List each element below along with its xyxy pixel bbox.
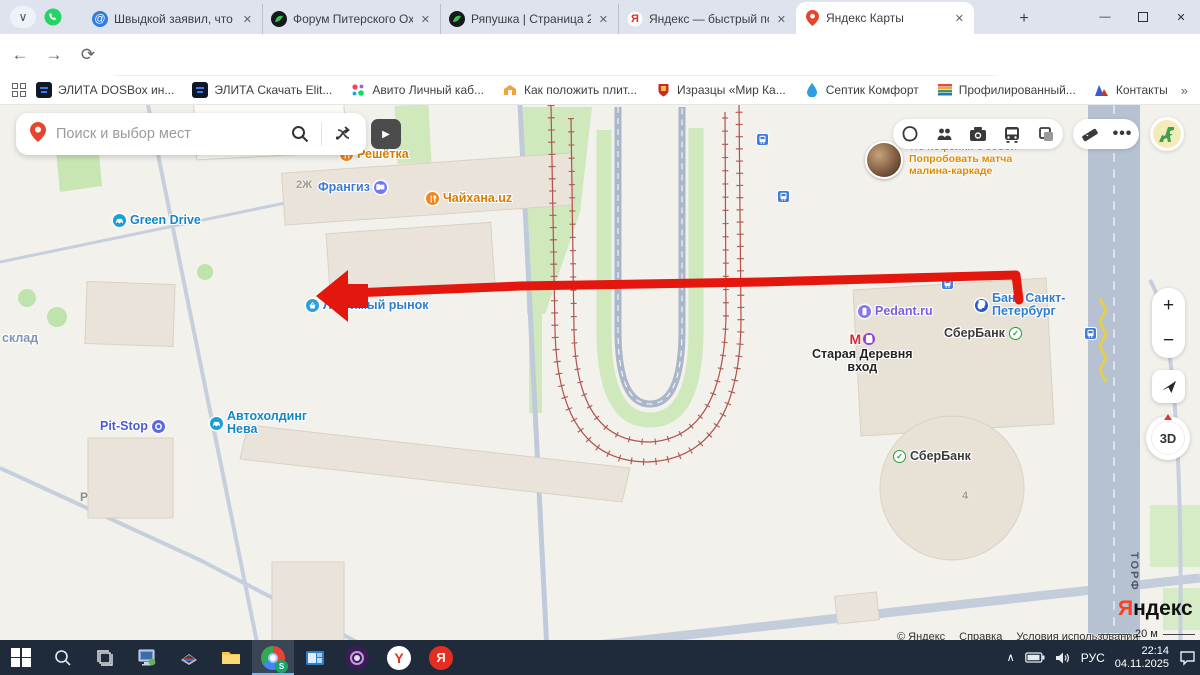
map-poi-6[interactable]: склад [2, 332, 38, 345]
reload-button[interactable]: ⟳ [74, 41, 102, 69]
back-button[interactable]: ← [6, 41, 34, 69]
more-tools-icon[interactable]: ••• [1110, 125, 1136, 143]
file-explorer-icon[interactable] [210, 640, 252, 675]
window-controls: — ✕ [1086, 0, 1200, 34]
bookmarks-overflow-icon[interactable]: » [1181, 83, 1188, 98]
map-text-4: ТОРФ [1128, 552, 1140, 592]
bookmark-label: Изразцы «Мир Ка... [677, 83, 786, 97]
yandex-logo[interactable]: Яндекс [1118, 597, 1193, 621]
help-link[interactable]: Справка [959, 631, 1002, 640]
panoramas-camera-icon[interactable] [965, 126, 991, 142]
map-poi-9[interactable]: Pedant.ru [858, 305, 933, 318]
map-poi-5[interactable]: Любимый рынок [306, 299, 429, 312]
transport-bus-icon[interactable] [999, 126, 1025, 143]
start-button[interactable] [0, 640, 42, 675]
bookmark-label: Профилированный... [959, 83, 1076, 97]
tab-close-icon[interactable]: ✕ [241, 13, 254, 26]
new-tab-button[interactable]: + [1012, 7, 1036, 31]
battery-icon[interactable] [1025, 652, 1045, 663]
bookmark-label: ЭЛИТА DOSBox ин... [58, 83, 174, 97]
action-center-icon[interactable] [1179, 650, 1196, 666]
map-pin-red-icon [30, 122, 46, 147]
draw-area-icon[interactable] [897, 125, 923, 143]
bookmark-item-2[interactable]: ЭЛИТА Скачать Elit... [192, 82, 332, 98]
transit-stop-icon-3[interactable] [941, 277, 954, 290]
map-base-layer [0, 105, 1200, 640]
map-text-1: 2Ж [296, 179, 312, 191]
language-indicator[interactable]: РУС [1081, 651, 1105, 665]
browser-tab-3[interactable]: Ряпушка | Страница 21 | Ф✕ [440, 4, 618, 34]
browser-tab-2[interactable]: Форум Питерского Охотн✕ [262, 4, 440, 34]
apps-grid-icon[interactable] [12, 83, 26, 97]
tab-close-icon[interactable]: ✕ [775, 13, 788, 26]
yandex-browser-icon[interactable]: Y [378, 640, 420, 675]
ruler-pill: ••• [1073, 119, 1139, 149]
remote-desktop-app-icon[interactable] [126, 640, 168, 675]
bookmark-label: Септик Комфорт [826, 83, 919, 97]
map-poi-8[interactable]: АвтохолдингНева [210, 410, 307, 436]
tor-browser-icon[interactable] [336, 640, 378, 675]
yandex-app-icon[interactable]: Я [420, 640, 462, 675]
close-button[interactable]: ✕ [1162, 0, 1200, 34]
compass-north-icon [1164, 414, 1172, 420]
browser-tab-1[interactable]: @Швыдкой заявил, что рус✕ [84, 4, 262, 34]
clock[interactable]: 22:14 04.11.2025 [1115, 645, 1169, 671]
map-poi-4[interactable]: Green Drive [113, 214, 201, 227]
volume-icon[interactable] [1055, 651, 1071, 665]
transit-stop-icon-4[interactable] [1084, 327, 1097, 340]
copyright-link[interactable]: © Яндекс [897, 631, 945, 640]
tab-search-button[interactable]: ∨ [10, 6, 36, 28]
system-tray: ∧ РУС 22:14 04.11.2025 [1007, 640, 1196, 675]
dino-game-button[interactable] [1150, 117, 1184, 151]
tab-close-icon[interactable]: ✕ [597, 13, 610, 26]
compass-3d-label: 3D [1151, 421, 1185, 455]
map-search-box[interactable]: Поиск и выбор мест [16, 113, 366, 155]
locate-me-button[interactable] [1152, 370, 1185, 403]
zoom-out-button[interactable]: − [1152, 323, 1185, 358]
whatsapp-pinned-icon[interactable] [44, 8, 62, 31]
bookmark-item-1[interactable]: ЭЛИТА DOSBox ин... [36, 82, 174, 98]
map-tools-pill [893, 119, 1063, 149]
tab-title: Форум Питерского Охотн [293, 12, 413, 26]
maximize-button[interactable] [1124, 0, 1162, 34]
taskbar-search-icon[interactable] [42, 640, 84, 675]
zoom-in-button[interactable]: + [1152, 288, 1185, 323]
map-text-2: 4 [962, 490, 968, 502]
bookmark-item-8[interactable]: Контакты [1094, 82, 1168, 98]
tab-close-icon[interactable]: ✕ [953, 12, 966, 25]
bookmark-label: Авито Личный каб... [372, 83, 484, 97]
bookmark-label: Как положить плит... [524, 83, 637, 97]
scale-label: 20 м [1135, 628, 1158, 640]
bookmark-item-4[interactable]: Как положить плит... [502, 82, 637, 98]
ruler-icon[interactable] [1077, 125, 1103, 143]
bookmark-item-5[interactable]: Изразцы «Мир Ка... [655, 82, 786, 98]
transit-stop-icon-2[interactable] [777, 190, 790, 203]
bookmark-item-7[interactable]: Профилированный... [937, 82, 1076, 98]
dino-icon [1153, 120, 1181, 148]
mirrors-people-icon[interactable] [931, 126, 957, 142]
promo-line3: малина-каркаде [909, 165, 1017, 177]
search-icon[interactable] [287, 125, 313, 143]
tab-title: Ряпушка | Страница 21 | Ф [471, 12, 591, 26]
clock-time: 22:14 [1115, 645, 1169, 658]
routes-icon[interactable] [330, 125, 356, 143]
chrome-taskbar-icon[interactable]: S [252, 640, 294, 675]
map-poi-13[interactable]: МSСтарая Деревнявход [812, 331, 913, 374]
map-poi-2[interactable]: Франгиз✂ [318, 181, 387, 194]
tab-title: Яндекс — быстрый поиск [649, 12, 769, 26]
tabs-container: @Швыдкой заявил, что рус✕Форум Питерског… [84, 0, 974, 34]
map-canvas[interactable]: Поиск и выбор мест ▶ ••• ★5 Кофейня с со… [0, 105, 1200, 640]
bookmark-item-3[interactable]: Авито Личный каб... [350, 82, 484, 98]
layers-icon[interactable] [1033, 126, 1059, 143]
tab-strip: ∨ @Швыдкой заявил, что рус✕Форум Питерск… [0, 0, 1200, 34]
map-poi-3[interactable]: Чайхана.uz [426, 192, 512, 205]
browser-tab-4[interactable]: ЯЯндекс — быстрый поиск✕ [618, 4, 796, 34]
tab-title: Яндекс Карты [826, 11, 947, 25]
windows-taskbar: S Y Я ∧ РУС 22:14 04.11.2025 [0, 640, 1200, 675]
zoom-controls: + − [1152, 288, 1185, 358]
task-view-icon[interactable] [84, 640, 126, 675]
browser-tab-5[interactable]: Яндекс Карты✕ [796, 2, 974, 34]
map-poi-11[interactable]: СберБанк✓ [944, 327, 1022, 340]
transit-stop-icon-1[interactable] [756, 133, 769, 146]
map-poi-12[interactable]: ✓СберБанк [893, 450, 971, 463]
map-poi-7[interactable]: Pit-Stop [100, 420, 165, 433]
scanner-app-icon[interactable] [168, 640, 210, 675]
map-text-3: Р [80, 490, 88, 504]
promo-photo-avatar [865, 141, 903, 179]
bookmark-item-6[interactable]: Септик Комфорт [804, 82, 919, 98]
chrome-profile-badge: S [275, 660, 288, 673]
tab-title: Швыдкой заявил, что рус [114, 12, 235, 26]
bookmark-label: ЭЛИТА Скачать Elit... [214, 83, 332, 97]
search-placeholder: Поиск и выбор мест [56, 126, 287, 142]
map-scale-bar: 20 м [1098, 628, 1195, 640]
bookmarks-items: ЭЛИТА DOSBox ин...ЭЛИТА Скачать Elit...А… [36, 82, 1168, 98]
map-poi-10[interactable]: ₽Банк Санкт-Петербург [975, 292, 1065, 318]
tray-chevron-icon[interactable]: ∧ [1007, 651, 1015, 664]
tab-close-icon[interactable]: ✕ [419, 13, 432, 26]
forward-button[interactable]: → [40, 41, 68, 69]
browser-toolbar: ← → ⟳ yandex.ru/maps/2/saint-petersburg/… [0, 34, 1200, 76]
clock-date: 04.11.2025 [1115, 658, 1169, 671]
bookmarks-bar: ЭЛИТА DOSBox ин...ЭЛИТА Скачать Elit...А… [0, 76, 1200, 105]
compass-3d-button[interactable]: 3D [1146, 416, 1190, 460]
promo-line2: Попробовать матча [909, 153, 1017, 165]
panel-expand-button[interactable]: ▶ [371, 119, 401, 149]
bookmark-label: Контакты [1116, 83, 1168, 97]
mail-app-icon[interactable] [294, 640, 336, 675]
minimize-button[interactable]: — [1086, 0, 1124, 34]
